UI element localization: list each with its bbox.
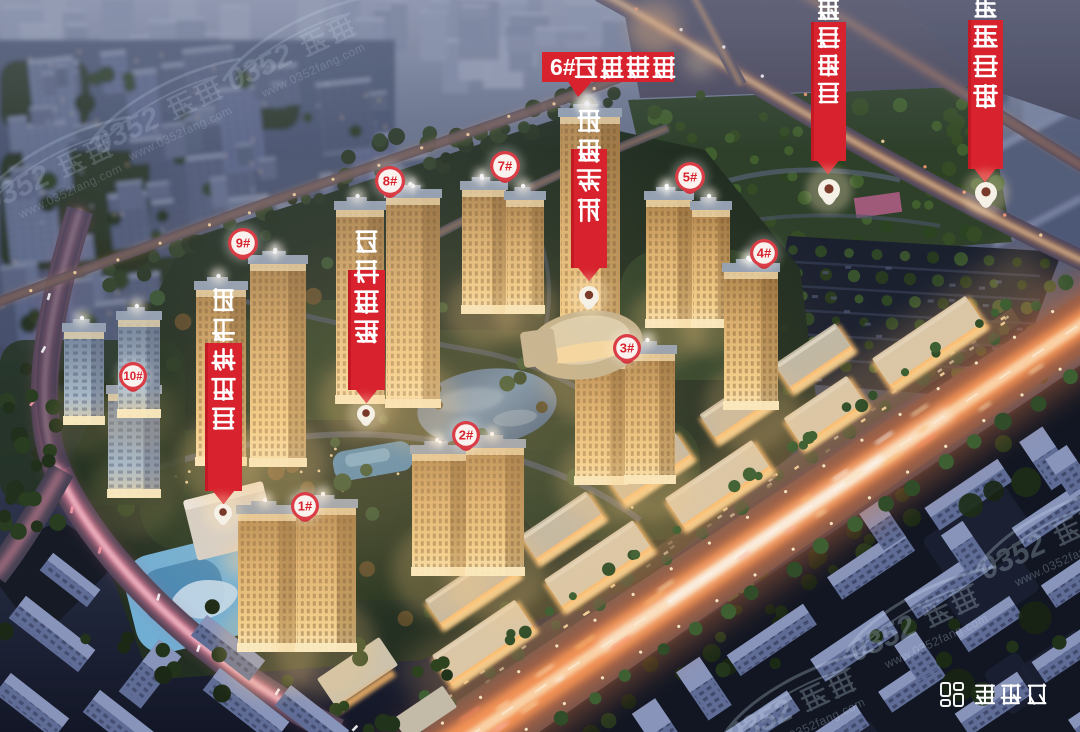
svg-text:2#: 2# <box>459 428 474 443</box>
svg-text:9#: 9# <box>236 236 251 251</box>
svg-text:3#: 3# <box>620 341 635 356</box>
svg-text:6#: 6# <box>550 54 576 80</box>
svg-text:4#: 4# <box>757 246 772 261</box>
svg-text:8#: 8# <box>383 174 398 189</box>
svg-text:7#: 7# <box>498 159 513 174</box>
svg-text:10#: 10# <box>123 371 143 383</box>
svg-text:1#: 1# <box>298 499 313 514</box>
svg-text:5#: 5# <box>683 170 698 185</box>
